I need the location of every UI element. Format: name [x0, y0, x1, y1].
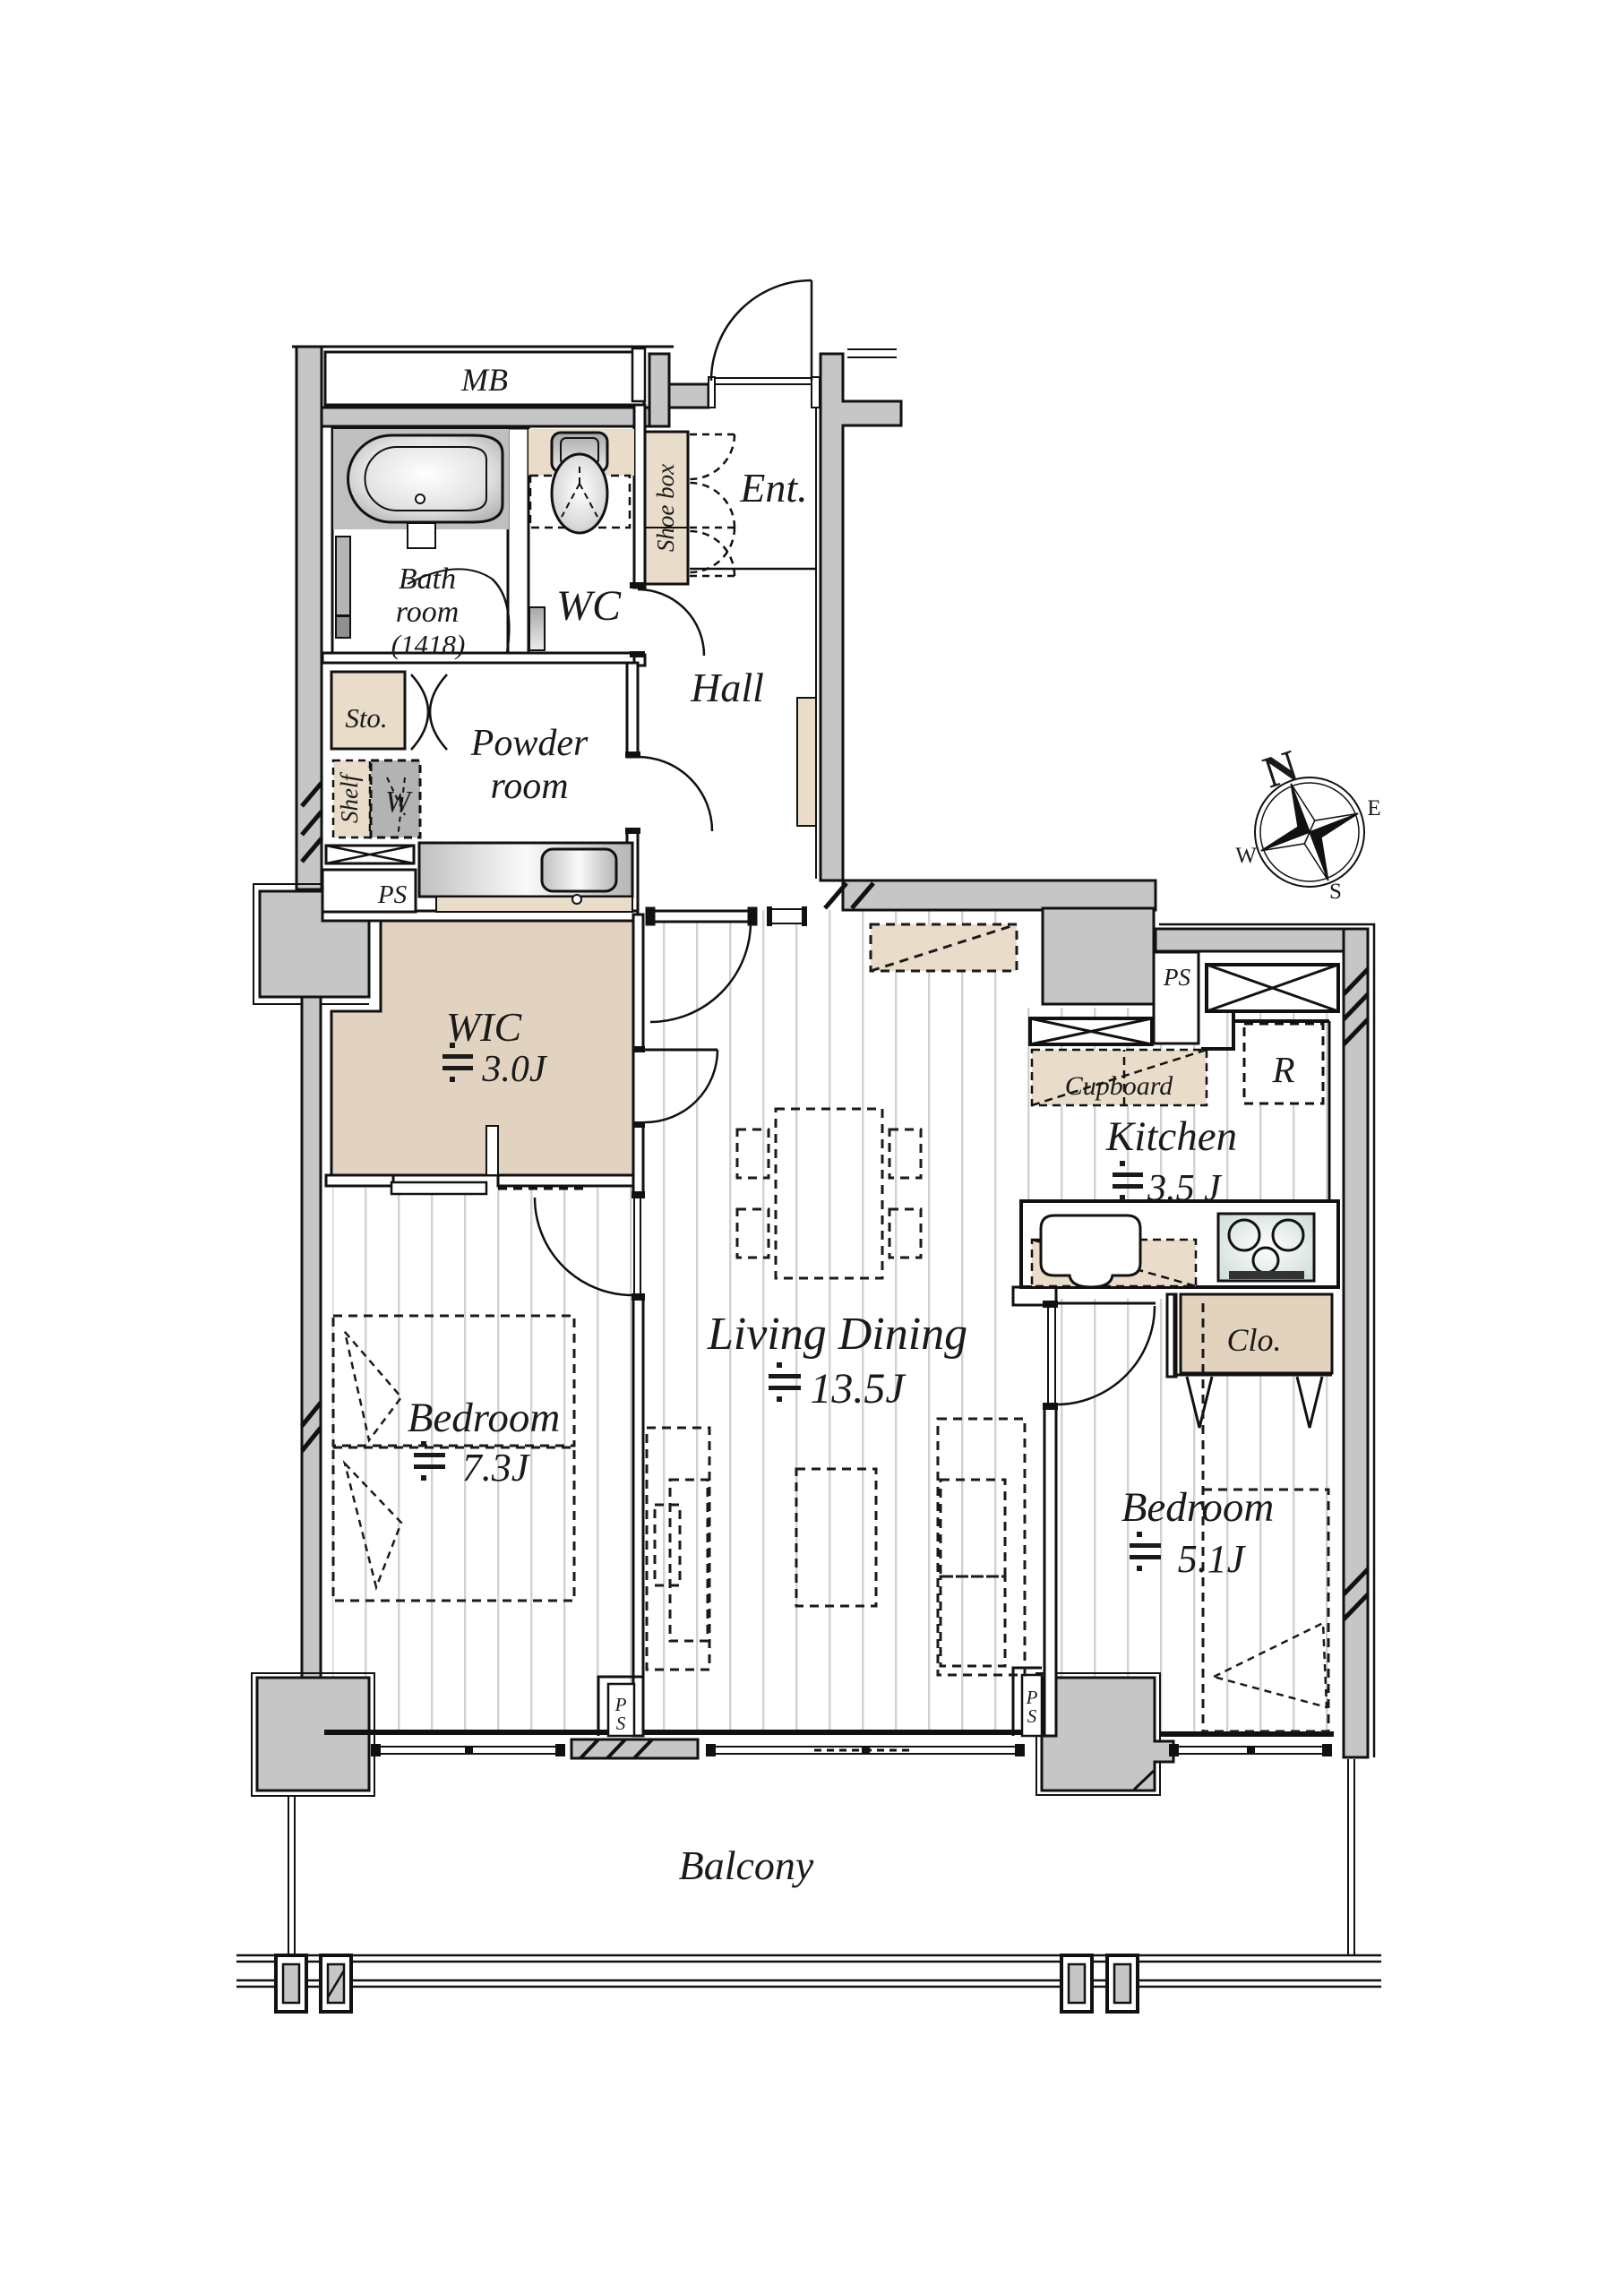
svg-text:13.5J: 13.5J [810, 1365, 907, 1413]
svg-text:room: room [396, 596, 460, 629]
svg-text:R: R [1271, 1049, 1294, 1090]
svg-text:W: W [385, 786, 413, 819]
svg-text:Balcony: Balcony [679, 1842, 814, 1888]
svg-text:Shoe box: Shoe box [652, 464, 679, 552]
svg-text:Powder: Powder [470, 723, 589, 764]
svg-text:WIC: WIC [446, 1004, 523, 1050]
svg-text:MB: MB [460, 362, 508, 398]
svg-text:(1418): (1418) [391, 629, 466, 660]
svg-text:3.5 J: 3.5 J [1147, 1168, 1223, 1209]
svg-text:7.3J: 7.3J [462, 1446, 531, 1490]
svg-text:W: W [1235, 844, 1257, 868]
svg-text:S: S [1329, 880, 1342, 904]
svg-text:Clo.: Clo. [1226, 1322, 1281, 1358]
svg-text:S: S [1027, 1705, 1037, 1727]
svg-text:E: E [1367, 796, 1380, 820]
svg-text:Shelf: Shelf [336, 772, 363, 823]
svg-text:Ent.: Ent. [739, 465, 807, 511]
svg-text:Bedroom: Bedroom [408, 1395, 561, 1441]
svg-text:Bedroom: Bedroom [1121, 1484, 1275, 1531]
svg-text:Hall: Hall [690, 665, 764, 710]
svg-text:S: S [616, 1713, 626, 1734]
svg-text:WC: WC [556, 582, 622, 630]
svg-text:3.0J: 3.0J [481, 1049, 548, 1090]
svg-text:5.1J: 5.1J [1178, 1537, 1247, 1581]
svg-text:PS: PS [377, 880, 408, 909]
svg-text:Kitchen: Kitchen [1105, 1113, 1237, 1160]
svg-text:PS: PS [1163, 964, 1190, 991]
svg-text:Living Dining: Living Dining [707, 1309, 967, 1360]
svg-text:Sto.: Sto. [345, 702, 387, 734]
svg-text:room: room [490, 766, 568, 807]
svg-text:Cupboard: Cupboard [1065, 1071, 1174, 1101]
svg-text:Bath: Bath [399, 563, 456, 596]
